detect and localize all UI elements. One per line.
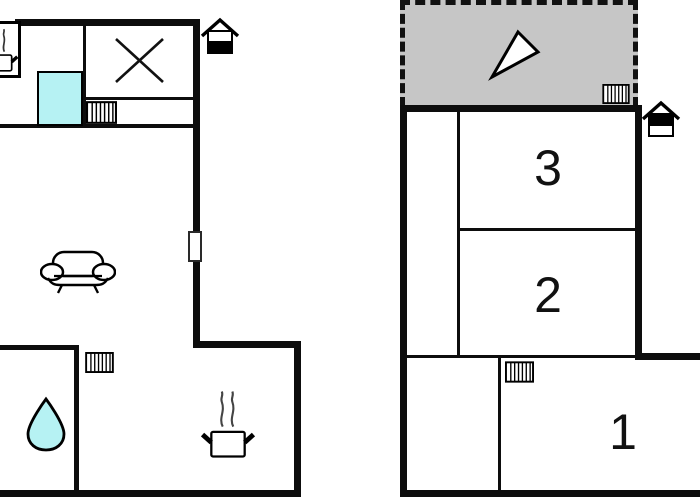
left-unit-right-wall-lower: [294, 341, 301, 497]
room-3-label: 3: [518, 142, 578, 194]
left-unit-right-wall-upper: [193, 19, 200, 348]
room3-room2-divider: [459, 228, 635, 231]
right-unit-right-ext-wall: [635, 353, 700, 360]
kitchen-bottom-wall: [0, 124, 195, 128]
floor-plan-canvas: 3 2 1: [0, 0, 700, 500]
bathroom-right-wall: [74, 345, 79, 495]
cross-hob-icon: [110, 33, 170, 89]
radiator-icon: [505, 361, 534, 383]
direction-arrow-icon: [486, 26, 546, 82]
hall-divider-wall: [457, 112, 460, 358]
right-unit-right-wall: [635, 105, 642, 360]
radiator-icon: [85, 352, 114, 373]
left-unit-bottom-wall: [0, 490, 301, 497]
right-unit-top-wall: [400, 105, 642, 112]
house-ground-floor-icon: [200, 17, 240, 57]
water-drop-icon: [23, 396, 69, 453]
bathroom-top-wall: [0, 345, 79, 350]
house-upper-floor-icon: [641, 100, 681, 140]
steaming-pot-icon: [196, 388, 260, 460]
room2-room1-divider: [407, 355, 635, 358]
water-square: [37, 71, 83, 126]
door-window-opening: [188, 231, 202, 262]
steaming-pot-icon: [0, 26, 19, 74]
sofa-icon: [40, 249, 116, 295]
right-unit-left-wall: [400, 105, 407, 497]
radiator-icon: [86, 101, 117, 124]
room-2-label: 2: [518, 269, 578, 321]
radiator-icon: [601, 84, 631, 104]
room-1-label: 1: [593, 406, 653, 458]
left-unit-top-wall: [15, 19, 200, 26]
right-unit-bottom-wall: [400, 490, 700, 497]
room1-left-divider: [498, 358, 501, 490]
hob-room-bottom-wall: [85, 97, 193, 100]
left-unit-step-wall: [193, 341, 301, 348]
